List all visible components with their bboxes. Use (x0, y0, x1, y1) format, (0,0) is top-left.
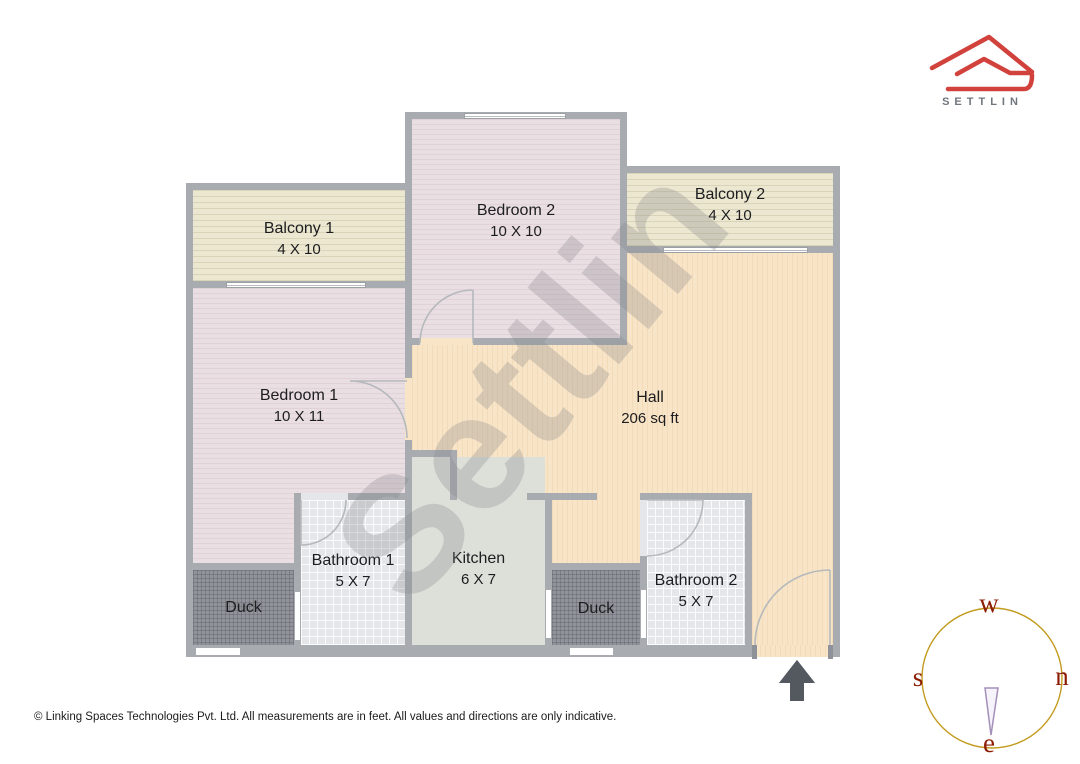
room-dims: 10 X 10 (412, 222, 620, 242)
duck-left-label: Duck (193, 598, 294, 619)
compass-letter-n: n (1055, 661, 1069, 691)
bathroom1-label: Bathroom 1 5 X 7 (297, 551, 409, 591)
compass-letter-w: w (979, 595, 999, 618)
compass-letter-s: s (913, 662, 924, 692)
bathroom2-label: Bathroom 2 5 X 7 (643, 571, 749, 611)
room-dims: 5 X 7 (297, 572, 409, 592)
settlin-logo-icon (925, 28, 1040, 94)
bathroom1-door-arc (301, 500, 346, 545)
bedroom2-door-arc (420, 290, 473, 343)
room-dims: 4 X 10 (627, 206, 833, 226)
room-name: Duck (193, 598, 294, 619)
room-name: Kitchen (412, 549, 545, 570)
floor-plan-page: Balcony 1 4 X 10 Bedroom 2 10 X 10 Balco… (0, 0, 1080, 764)
room-dims: 6 X 7 (412, 570, 545, 590)
room-name: Bathroom 1 (297, 551, 409, 572)
room-name: Bathroom 2 (643, 571, 749, 592)
bedroom2-label: Bedroom 2 10 X 10 (412, 201, 620, 241)
bedroom1-label: Bedroom 1 10 X 11 (193, 386, 405, 426)
room-dims: 10 X 11 (193, 407, 405, 427)
entrance-door-arc (755, 570, 830, 645)
balcony1-label: Balcony 1 4 X 10 (193, 219, 405, 259)
room-dims: 5 X 7 (643, 592, 749, 612)
compass-rose: w s n e (905, 595, 1080, 764)
compass-letter-e: e (983, 728, 995, 758)
room-dims: 4 X 10 (193, 240, 405, 260)
duck-right-label: Duck (552, 599, 640, 620)
room-name: Balcony 1 (193, 219, 405, 240)
kitchen-label: Kitchen 6 X 7 (412, 549, 545, 589)
hall-label: Hall 206 sq ft (550, 388, 750, 428)
room-dims: 206 sq ft (550, 409, 750, 429)
room-name: Bedroom 1 (193, 386, 405, 407)
room-name: Duck (552, 599, 640, 620)
balcony2-label: Balcony 2 4 X 10 (627, 185, 833, 225)
copyright-text: © Linking Spaces Technologies Pvt. Ltd. … (34, 711, 616, 723)
bathroom2-door-arc (647, 500, 703, 556)
brand-name: SETTLIN (925, 96, 1040, 108)
room-name: Hall (550, 388, 750, 409)
entrance-arrow-icon (770, 655, 830, 705)
room-name: Bedroom 2 (412, 201, 620, 222)
room-name: Balcony 2 (627, 185, 833, 206)
